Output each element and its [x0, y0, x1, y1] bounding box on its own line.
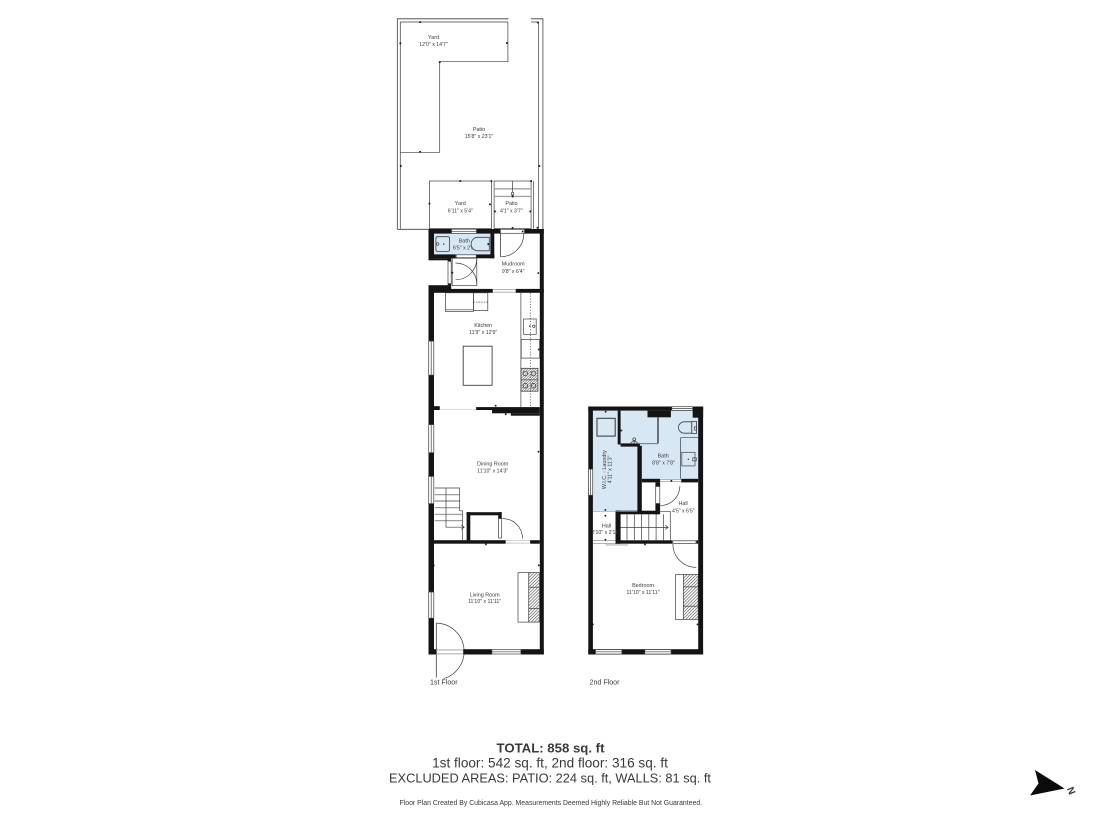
svg-text:Patio: Patio	[505, 201, 517, 207]
svg-text:Mudroom: Mudroom	[502, 261, 525, 267]
svg-text:9'8" x 6'4": 9'8" x 6'4"	[502, 269, 525, 275]
svg-text:Yard: Yard	[428, 35, 439, 41]
svg-text:Kitchen: Kitchen	[474, 323, 492, 329]
svg-text:2'10" x 2'11": 2'10" x 2'11"	[592, 530, 620, 536]
svg-text:6'11" x 5'4": 6'11" x 5'4"	[448, 208, 473, 214]
svg-text:1st floor: 542 sq. ft, 2nd flo: 1st floor: 542 sq. ft, 2nd floor: 316 sq…	[432, 756, 668, 771]
svg-text:11'9" x 12'9": 11'9" x 12'9"	[469, 330, 497, 336]
svg-text:1st Floor: 1st Floor	[430, 678, 458, 686]
svg-text:TOTAL: 858 sq. ft: TOTAL: 858 sq. ft	[497, 740, 606, 755]
svg-text:15'8" x 23'1": 15'8" x 23'1"	[465, 134, 494, 140]
svg-text:EXCLUDED AREAS: PATIO: 224 sq.: EXCLUDED AREAS: PATIO: 224 sq. ft, WALLS…	[389, 771, 711, 786]
svg-text:11'10" x 11'11": 11'10" x 11'11"	[468, 599, 501, 605]
svg-text:Hall: Hall	[678, 501, 687, 507]
svg-text:8'8" x 7'8": 8'8" x 7'8"	[652, 460, 675, 466]
svg-text:Hall: Hall	[602, 524, 611, 530]
svg-text:4'5" x 6'5": 4'5" x 6'5"	[672, 509, 695, 515]
svg-text:4'1" x 3'7": 4'1" x 3'7"	[500, 208, 523, 214]
svg-text:Yard: Yard	[455, 201, 466, 207]
svg-text:Bath: Bath	[658, 454, 669, 460]
svg-text:12'0" x 14'7": 12'0" x 14'7"	[419, 42, 448, 48]
svg-text:Living Room: Living Room	[470, 592, 500, 598]
svg-text:2nd Floor: 2nd Floor	[590, 678, 621, 686]
svg-text:Patio: Patio	[473, 127, 485, 133]
svg-text:Dining Room: Dining Room	[477, 462, 509, 468]
svg-text:Floor Plan Created By Cubicasa: Floor Plan Created By Cubicasa App. Meas…	[400, 800, 703, 807]
svg-text:11'10" x 11'11": 11'10" x 11'11"	[626, 590, 659, 596]
svg-text:Bedroom: Bedroom	[632, 583, 654, 589]
svg-text:11'10" x 14'3": 11'10" x 14'3"	[477, 468, 508, 474]
svg-text:Bath: Bath	[459, 238, 470, 244]
svg-text:4'11" x 11'3": 4'11" x 11'3"	[607, 455, 613, 483]
